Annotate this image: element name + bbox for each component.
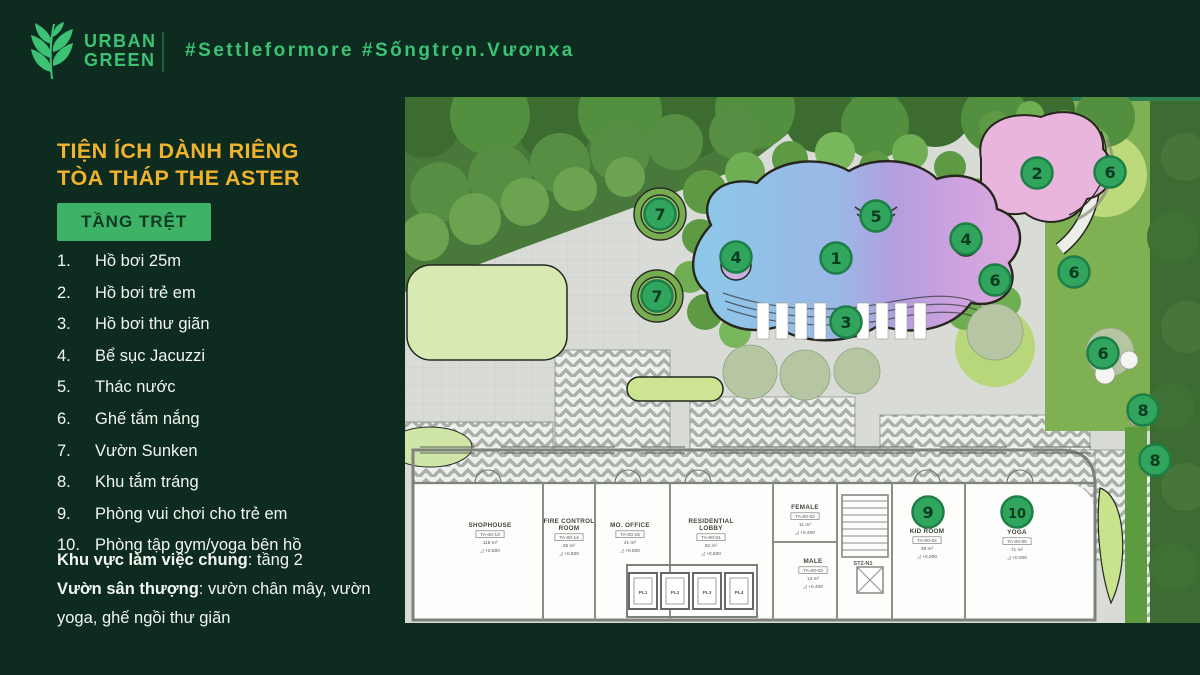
svg-text:10: 10 [1008,507,1026,522]
svg-text:FEMALE: FEMALE [791,504,819,511]
amenity-item: 6.Ghế tắm nắng [57,410,402,429]
svg-text:YOGA: YOGA [1007,529,1027,536]
svg-text:38 m²: 38 m² [921,546,934,552]
svg-text:PL4: PL4 [735,590,744,596]
svg-text:TA-00-13: TA-00-13 [480,532,500,538]
amenity-number: 2. [57,284,95,303]
svg-text:KID ROOM: KID ROOM [910,528,945,535]
amenity-number: 3. [57,315,95,334]
svg-text:4: 4 [960,230,971,249]
logo-word-urban: URBAN [84,32,157,51]
plan-marker-6: 6 [1059,257,1090,288]
svg-text:PL3: PL3 [703,590,712,596]
amenity-item: 9.Phòng vui chơi cho trẻ em [57,505,402,524]
plan-marker-6: 6 [980,265,1011,296]
svg-text:◿ +0.000: ◿ +0.000 [1007,555,1027,561]
amenity-label: Hồ bơi 25m [95,252,181,271]
svg-text:◿ +0.400: ◿ +0.400 [795,530,815,536]
svg-text:6: 6 [1104,163,1115,182]
svg-text:9: 9 [922,503,933,522]
svg-text:RESIDENTIAL: RESIDENTIAL [688,518,733,525]
amenity-label: Ghế tắm nắng [95,410,200,429]
amenity-number: 1. [57,252,95,271]
amenity-number: 5. [57,378,95,397]
plan-marker-7: 7 [645,199,676,230]
svg-text:◿ +0.500: ◿ +0.500 [559,551,579,557]
svg-text:25 m²: 25 m² [563,543,576,549]
amenity-label: Hồ bơi thư giãn [95,315,210,334]
amenity-item: 4.Bể sục Jacuzzi [57,347,402,366]
svg-text:PL1: PL1 [639,590,648,596]
amenity-item: 5.Thác nước [57,378,402,397]
plan-marker-10: 10 [1002,497,1033,528]
svg-text:◿ +0.500: ◿ +0.500 [480,548,500,554]
campaign-hashtag: #Settleformore #Sốngtrọn.Vươnxa [185,40,575,62]
stair-label: ST2-N1 [853,561,872,567]
plan-marker-3: 3 [831,307,862,338]
plan-marker-4: 4 [951,224,982,255]
amenity-item: 3.Hồ bơi thư giãn [57,315,402,334]
elevator-PL3: PL3 [693,573,721,609]
svg-text:6: 6 [1097,344,1108,363]
urban-green-logo: URBAN GREEN [30,22,157,80]
svg-text:TA-00-15: TA-00-15 [620,532,640,538]
svg-text:8: 8 [1149,451,1160,470]
elevator-PL4: PL4 [725,573,753,609]
svg-text:2: 2 [1031,164,1042,183]
plan-marker-5: 5 [861,201,892,232]
amenity-label: Hồ bơi trẻ em [95,284,196,303]
note-line: Vườn sân thượng: vườn chân mây, vườn yog… [57,575,405,633]
plan-marker-8: 8 [1140,445,1171,476]
plan-marker-1: 1 [821,243,852,274]
svg-text:5: 5 [870,207,881,226]
amenity-number: 4. [57,347,95,366]
amenity-label: Thác nước [95,378,176,397]
svg-text:71 m²: 71 m² [1011,547,1024,553]
amenity-number: 9. [57,505,95,524]
amenity-number: 6. [57,410,95,429]
svg-text:7: 7 [654,205,665,224]
svg-text:6: 6 [989,271,1000,290]
amenity-item: 2.Hồ bơi trẻ em [57,284,402,303]
amenity-item: 1.Hồ bơi 25m [57,252,402,271]
svg-text:13 m²: 13 m² [807,576,820,582]
svg-text:TA-00-03: TA-00-03 [803,568,823,574]
svg-text:◿ +0.500: ◿ +0.500 [701,551,721,557]
plan-marker-6: 6 [1095,157,1126,188]
svg-text:TA-00-04: TA-00-04 [917,538,937,544]
floor-tab-ground[interactable]: TẦNG TRỆT [57,203,211,241]
page-title: TIỆN ÍCH DÀNH RIÊNG TÒA THÁP THE ASTER [57,138,300,192]
logo-word-green: GREEN [84,51,157,70]
svg-text:TA-00-02: TA-00-02 [795,514,815,520]
amenity-number: 8. [57,473,95,492]
svg-text:ROOM: ROOM [559,525,580,532]
svg-text:LOBBY: LOBBY [699,525,723,532]
svg-text:◿ +0.400: ◿ +0.400 [803,584,823,590]
svg-text:◿ +0.000: ◿ +0.000 [917,554,937,560]
amenity-number: 7. [57,442,95,461]
svg-text:6: 6 [1068,263,1079,282]
svg-text:41 m²: 41 m² [624,540,637,546]
svg-text:4: 4 [730,248,741,267]
amenities-list: 1.Hồ bơi 25m2.Hồ bơi trẻ em3.Hồ bơi thư … [57,252,402,568]
note-line: Khu vực làm việc chung: tầng 2 [57,546,405,575]
amenity-label: Khu tắm tráng [95,473,199,492]
header-divider [162,32,164,72]
svg-text:7: 7 [651,287,662,306]
svg-text:◿ +0.500: ◿ +0.500 [620,548,640,554]
svg-text:MO. OFFICE: MO. OFFICE [610,522,650,529]
svg-text:118 m²: 118 m² [483,540,498,546]
svg-text:8: 8 [1137,401,1148,420]
plan-marker-2: 2 [1022,158,1053,189]
extra-notes: Khu vực làm việc chung: tầng 2Vườn sân t… [57,546,405,633]
plan-marker-6: 6 [1088,338,1119,369]
amenity-item: 8.Khu tắm tráng [57,473,402,492]
svg-text:11 m²: 11 m² [799,522,811,528]
title-line-2: TÒA THÁP THE ASTER [57,165,300,192]
svg-text:PL2: PL2 [671,590,680,596]
plan-marker-8: 8 [1128,395,1159,426]
plan-marker-4: 4 [721,242,752,273]
svg-text:MALE: MALE [803,558,822,565]
svg-text:TA-00-05: TA-00-05 [1007,539,1027,545]
amenity-label: Bể sục Jacuzzi [95,347,205,366]
title-line-1: TIỆN ÍCH DÀNH RIÊNG [57,138,300,165]
amenity-label: Vườn Sunken [95,442,198,461]
plan-marker-7: 7 [642,281,673,312]
svg-text:3: 3 [840,313,851,332]
svg-text:SHOPHOUSE: SHOPHOUSE [469,522,512,529]
wheat-leaf-icon [30,22,74,80]
plan-marker-9: 9 [913,497,944,528]
svg-text:TA-00-01: TA-00-01 [701,535,721,541]
site-plan: PL1PL2PL3PL4 SHOPHOUSETA-00-13118 m²◿ +0… [405,97,1200,663]
elevator-PL2: PL2 [661,573,689,609]
amenity-label: Phòng vui chơi cho trẻ em [95,505,287,524]
svg-text:FIRE CONTROL: FIRE CONTROL [544,518,595,525]
amenity-item: 7.Vườn Sunken [57,442,402,461]
svg-text:62 m²: 62 m² [705,543,718,549]
svg-text:1: 1 [830,249,841,268]
svg-text:TA-00-14: TA-00-14 [559,535,579,541]
elevator-PL1: PL1 [629,573,657,609]
